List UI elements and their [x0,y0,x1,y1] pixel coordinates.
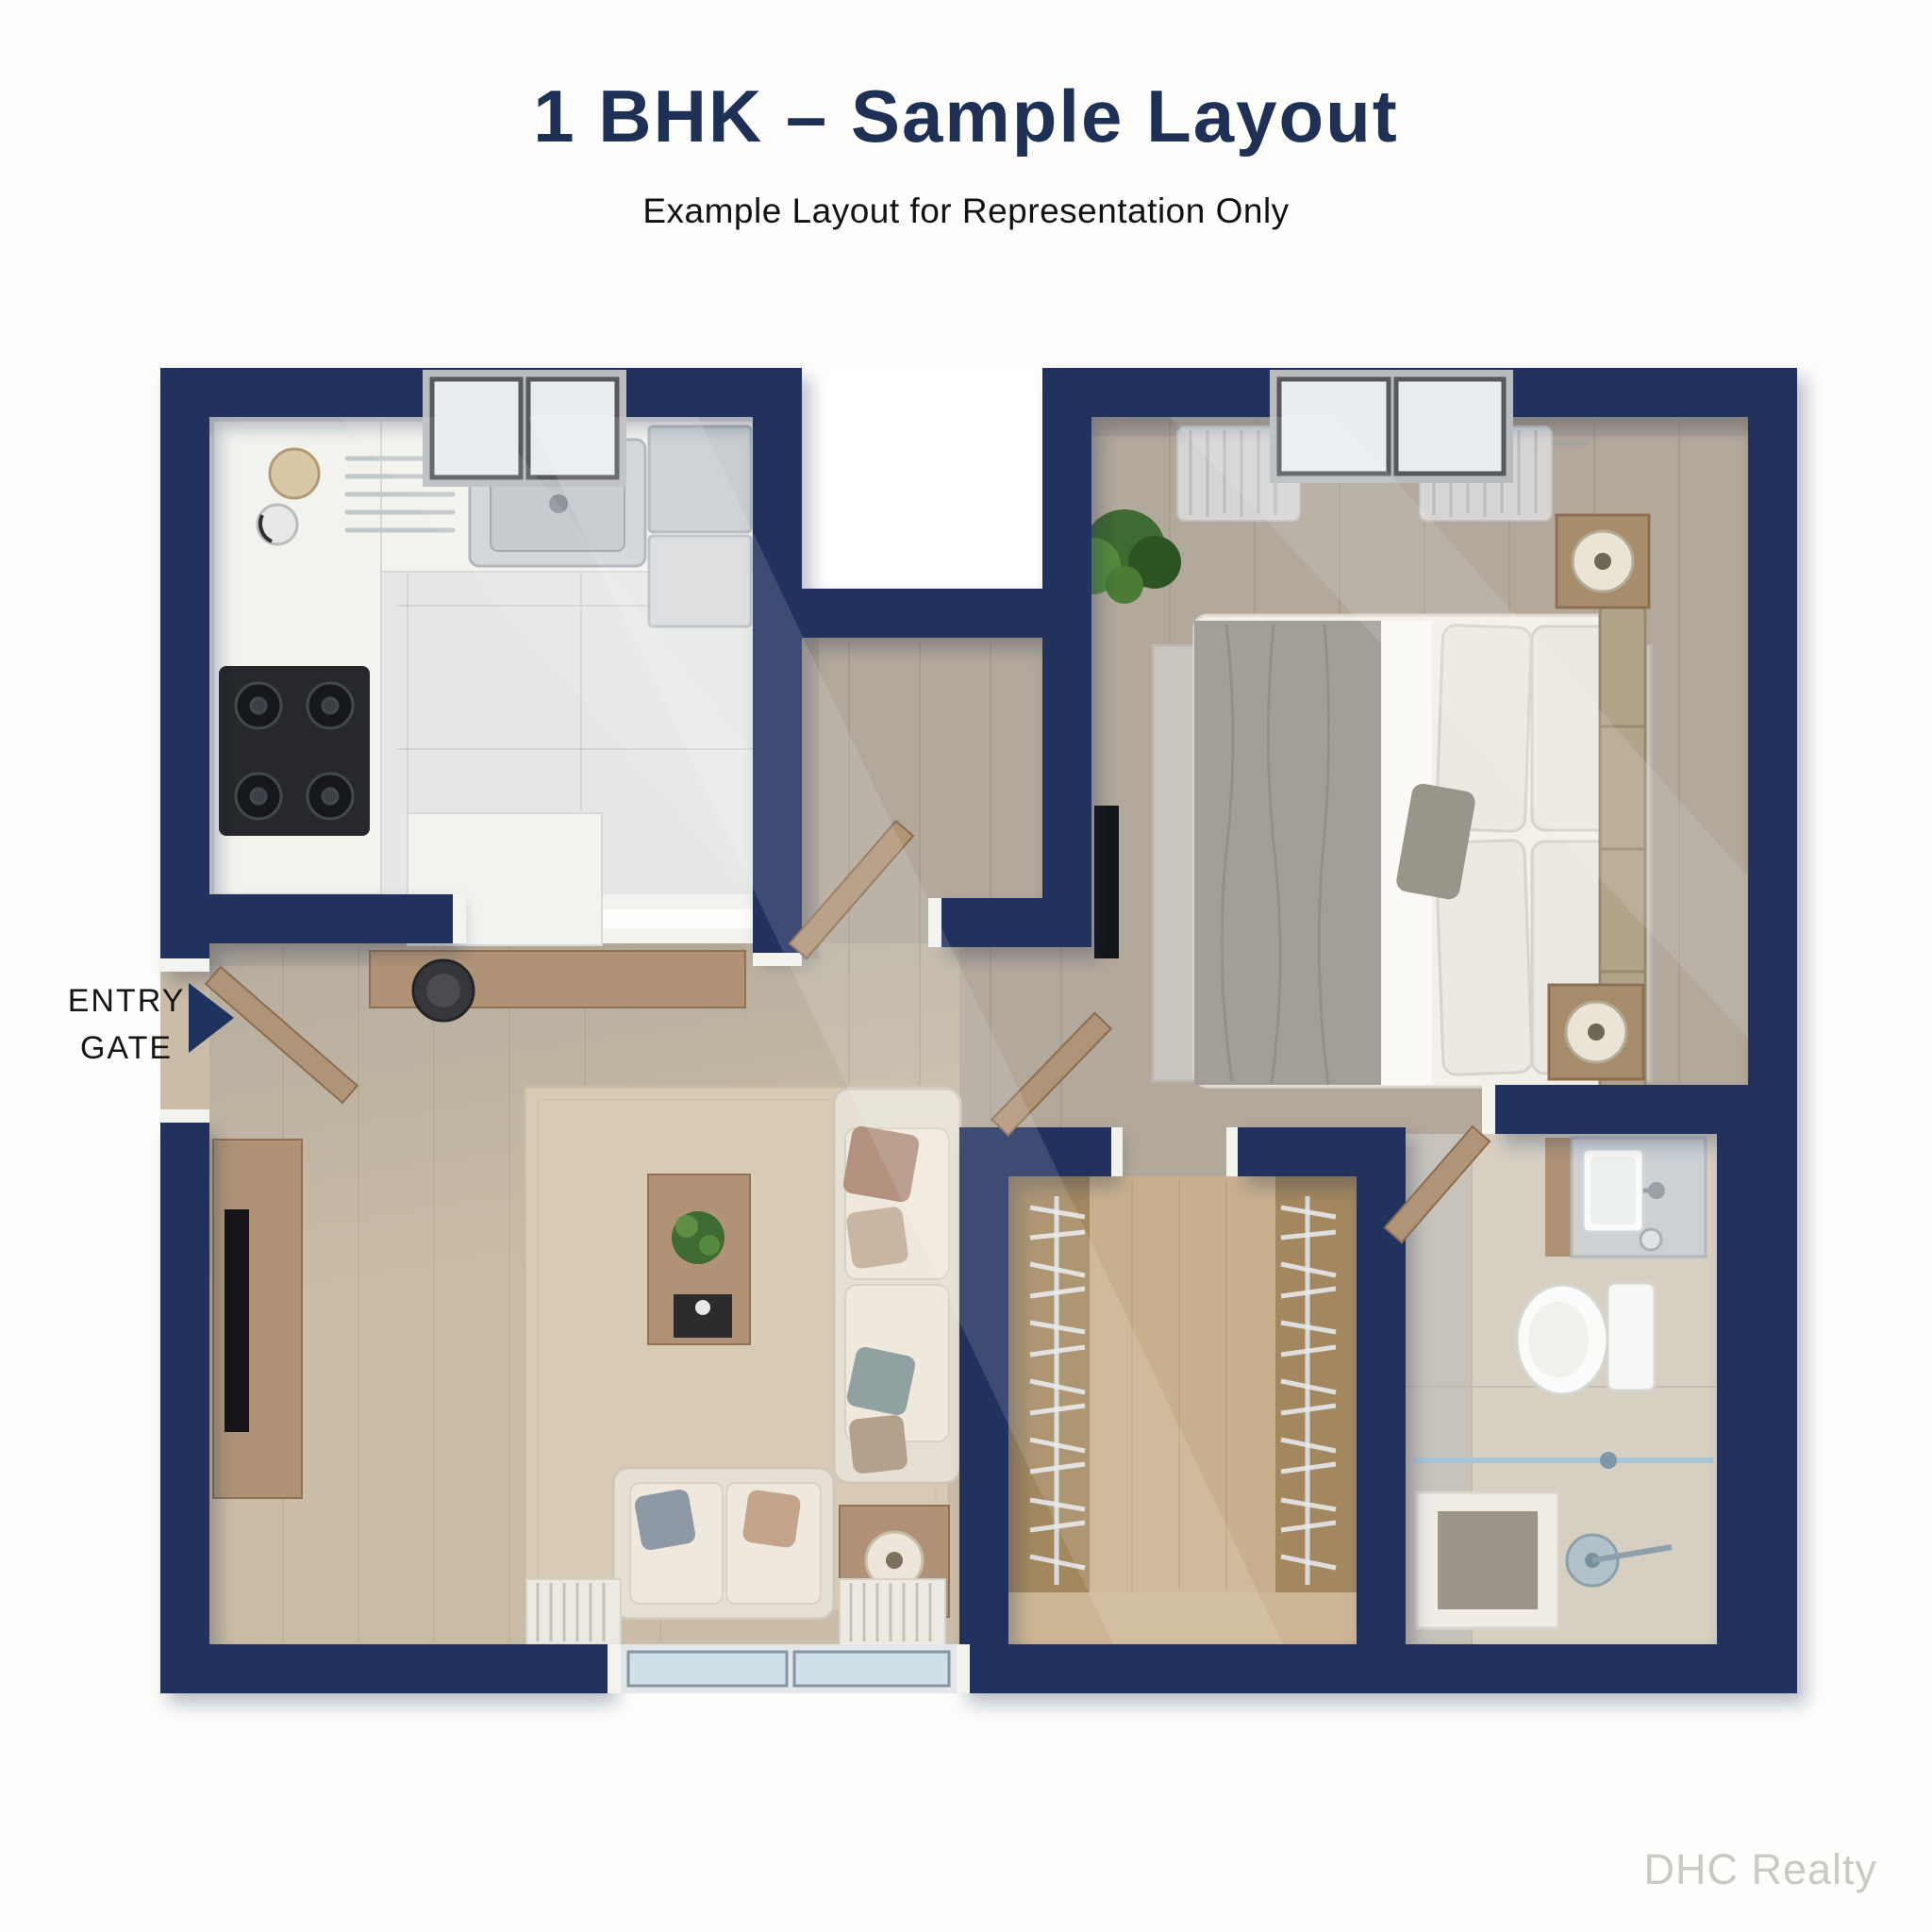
toilet-tank [1607,1283,1655,1391]
wall-bathroom-top [1495,1085,1748,1134]
entry-gate-line2: GATE [60,1024,192,1072]
floor-plan [0,0,1932,1932]
watermark: DHC Realty [1643,1845,1877,1894]
wall-left-upper [160,368,209,972]
wall-notch-bottom [775,589,1069,638]
glass-handle [1600,1452,1617,1469]
wall-left-lower [160,1123,209,1693]
page-title: 1 BHK – Sample Layout [0,74,1932,159]
wall-bottom-left [160,1644,608,1693]
entry-arrow-icon [189,983,234,1053]
soap-dish [1641,1229,1661,1250]
wall-tv [1094,806,1119,958]
wall-right-inset [1717,1085,1750,1693]
wall-corridor-arm [940,898,1091,947]
wall-right [1748,368,1797,1693]
loveseat-pillow [741,1489,801,1548]
entry-gate-label: ENTRY GATE [60,977,192,1072]
header: 1 BHK – Sample Layout Example Layout for… [0,74,1932,231]
balcony-glass-door [621,1644,957,1693]
jar-white [258,505,297,544]
page-subtitle: Example Layout for Representation Only [0,192,1932,231]
tv-screen [225,1209,249,1432]
jar-beige [270,449,319,498]
loveseat-pillow [633,1488,696,1551]
wall-kitchen-bottom [160,894,453,943]
entry-gate-line1: ENTRY [60,977,192,1024]
sofa-pillow [845,1345,917,1417]
exterior-notch [802,368,1042,591]
wall-bedroom-left [1042,417,1091,947]
blanket [1194,621,1381,1085]
vanity-cabinet [1545,1138,1572,1257]
sofa-pillow [848,1414,908,1474]
sofa-pillow [845,1206,909,1270]
